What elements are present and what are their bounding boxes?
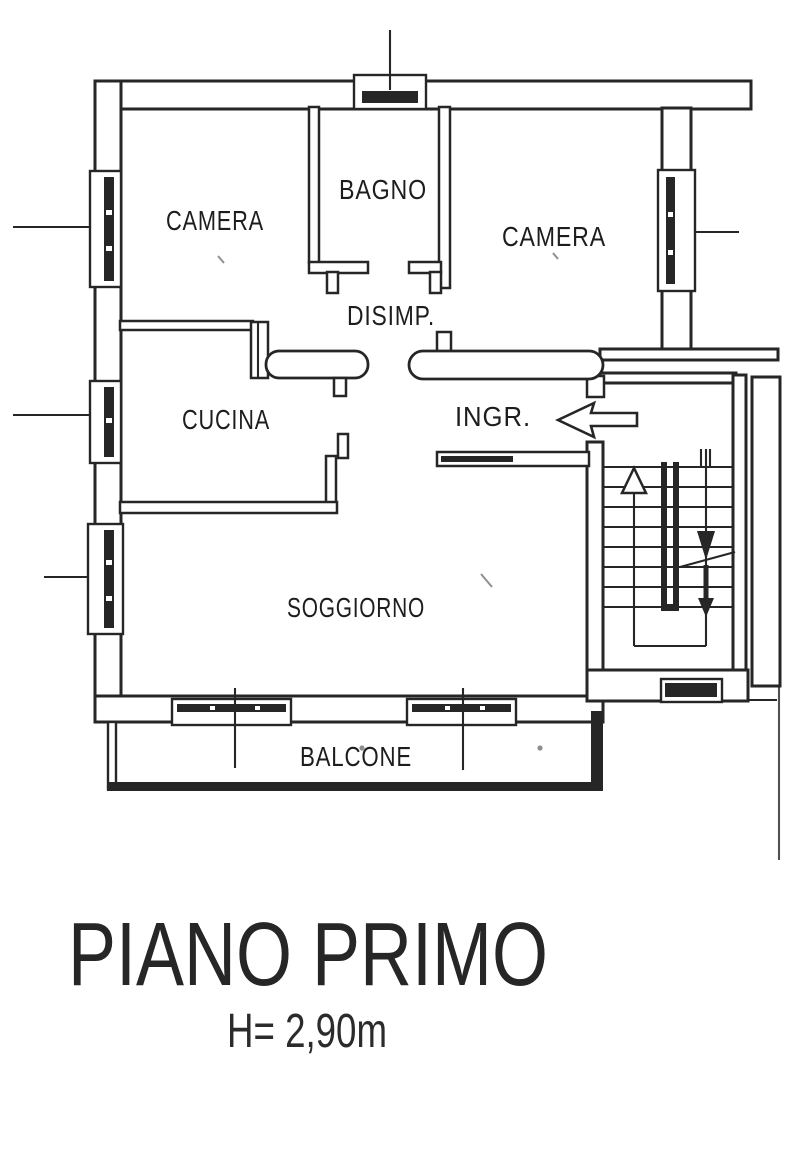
stair-stringer-cap: [661, 604, 679, 611]
cucina-door-hinge: [334, 378, 346, 396]
wall-exterior-right: [752, 377, 780, 686]
wall-landing-band: [600, 373, 736, 383]
window-camera2: [658, 170, 695, 291]
floor-plan-drawing: CAMERA BAGNO CAMERA DISIMP. CUCINA INGR.…: [0, 0, 807, 1150]
door-jamb-bagno-right: [430, 272, 441, 293]
stair-treads: [603, 467, 734, 607]
wall-ingresso-bottom-hatch: [441, 456, 513, 462]
room-labels: CAMERA BAGNO CAMERA DISIMP. CUCINA INGR.…: [166, 174, 606, 772]
entrance-door-symbol: [409, 351, 603, 379]
wall-cucina-stub: [338, 434, 348, 458]
wall-stair-right: [733, 375, 746, 701]
window-balcony-door-left: [172, 699, 291, 725]
stair-stringer-right: [673, 462, 679, 611]
down-arrow-icon: [697, 531, 715, 560]
wall-stair-left: [587, 442, 603, 701]
balcony-front-edge: [107, 782, 603, 791]
window-stair-landing: [661, 679, 722, 702]
wall-cucina-corner: [326, 456, 336, 504]
window-camera1: [90, 171, 121, 287]
stair-stringer-left: [661, 462, 667, 611]
up-arrow-icon: [622, 468, 646, 493]
room-label-bagno: BAGNO: [339, 174, 427, 205]
room-label-soggiorno: SOGGIORNO: [287, 592, 425, 623]
window-balcony-door-right: [407, 699, 516, 725]
room-label-balcone: BALCONE: [300, 741, 412, 772]
wall-bagno-left: [309, 107, 319, 263]
room-label-cucina: CUCINA: [182, 404, 270, 435]
entrance-arrow-icon: [558, 403, 637, 437]
wall-cucina-bottom: [120, 502, 337, 513]
balcony-left-edge: [108, 722, 116, 789]
room-label-disimpegno: DISIMP.: [347, 300, 435, 331]
ceiling-height-note: H= 2,90m: [227, 1005, 387, 1058]
room-label-ingresso: INGR.: [455, 401, 531, 432]
cucina-door-symbol: [266, 351, 368, 378]
balcony-right-edge: [591, 711, 603, 791]
window-soggiorno-left: [88, 524, 123, 634]
wall-entry-top-band: [600, 349, 778, 360]
door-symbols: [266, 351, 603, 396]
title-block: PIANO PRIMO H= 2,90m: [68, 905, 548, 1058]
room-label-camera-1: CAMERA: [166, 205, 264, 236]
room-label-camera-2: CAMERA: [502, 221, 606, 252]
wall-cucina-top: [120, 321, 253, 330]
floor-title: PIANO PRIMO: [68, 905, 548, 1005]
flue-symbol: [354, 30, 426, 109]
window-cucina: [90, 381, 121, 463]
staircase: [603, 449, 735, 646]
door-jamb-bagno-left: [327, 272, 338, 293]
floor-plan-page: CAMERA BAGNO CAMERA DISIMP. CUCINA INGR.…: [0, 0, 807, 1150]
